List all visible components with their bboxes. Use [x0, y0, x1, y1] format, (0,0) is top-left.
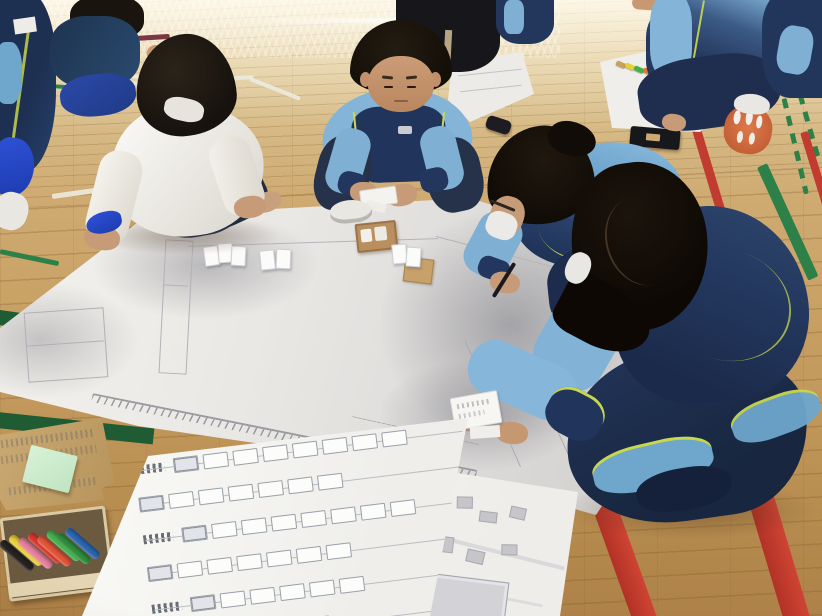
flowchart-box [309, 580, 336, 598]
flowchart-box [339, 576, 366, 594]
map-building [457, 496, 473, 508]
flowchart-box [279, 583, 306, 601]
flowchart-box [325, 542, 352, 560]
map-building [501, 544, 517, 555]
flowchart-box [190, 594, 217, 612]
gym-photo [0, 0, 822, 616]
flowchart-box [330, 506, 357, 524]
map-building [465, 548, 485, 565]
flowchart-box [292, 441, 319, 459]
flowchart-box [381, 430, 408, 448]
flowchart-box [198, 487, 225, 505]
flowchart-box [360, 503, 387, 521]
flowchart-box [168, 491, 195, 509]
flowchart-box [249, 587, 276, 605]
flowchart-box [206, 557, 233, 575]
flowchart-box [147, 564, 174, 582]
flowchart-box [173, 455, 200, 473]
flowchart-box [322, 437, 349, 455]
flowchart-box [351, 433, 378, 451]
flowchart-box [262, 444, 289, 462]
flowchart-box [241, 517, 268, 535]
flowchart-box [236, 553, 263, 571]
marker-box [0, 500, 109, 604]
flowchart-box [287, 476, 314, 494]
flowchart-box [211, 521, 238, 539]
flowchart-box [138, 495, 165, 513]
flowchart-box [228, 484, 255, 502]
flowchart-row-header [151, 601, 182, 614]
map-building [479, 510, 498, 523]
flowchart-box [390, 499, 417, 517]
flowchart-box [220, 591, 247, 609]
flowchart-box [177, 561, 204, 579]
flowchart-box [257, 480, 284, 498]
flowchart-box [181, 525, 208, 543]
flowchart-box [232, 448, 259, 466]
flowchart-row-header [143, 532, 174, 545]
flowchart-box [266, 550, 293, 568]
flowchart-box [202, 452, 229, 470]
flowchart-box [296, 546, 323, 564]
map-building [509, 505, 527, 520]
flowchart-box [271, 514, 298, 532]
flowchart-box [317, 473, 344, 491]
white-slip-under-card [470, 425, 501, 439]
flowchart-box [300, 510, 327, 528]
